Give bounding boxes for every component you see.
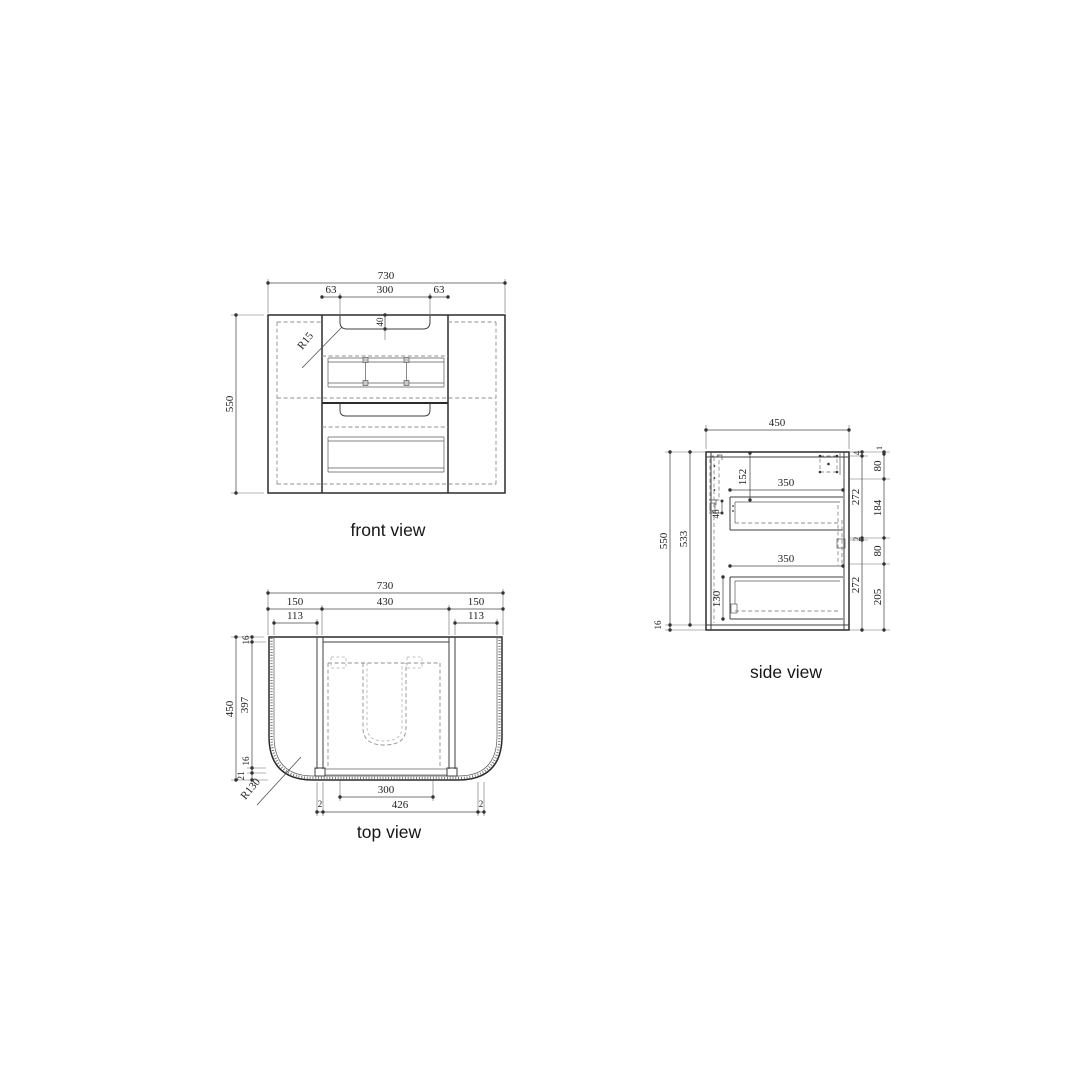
dim-top-300: 300 xyxy=(378,784,395,796)
front-view: 730 63 300 63 40 R15 550 front view xyxy=(224,270,507,540)
dim-front-r15: R15 xyxy=(295,330,316,352)
dim-side-80-bottom: 80 xyxy=(872,545,884,557)
dim-side-205: 205 xyxy=(872,588,884,605)
dim-front-40: 40 xyxy=(375,317,385,327)
dim-top-150-left: 150 xyxy=(287,596,304,608)
dim-side-272-bottom: 272 xyxy=(850,577,862,594)
front-view-label: front view xyxy=(351,520,426,540)
dim-side-152: 152 xyxy=(737,469,749,486)
dim-top-426: 426 xyxy=(392,799,409,811)
top-view-label: top view xyxy=(357,822,422,842)
dim-front-730: 730 xyxy=(378,270,395,282)
dim-top-21: 21 xyxy=(236,772,246,781)
dim-top-113-left: 113 xyxy=(287,610,304,622)
side-view-dimensions: 450 550 16 533 46 152 350 350 xyxy=(653,417,890,632)
dim-side-350-top: 350 xyxy=(778,477,795,489)
dim-front-300: 300 xyxy=(377,284,394,296)
vanity-cabinet-drawing: 730 63 300 63 40 R15 550 front view xyxy=(0,0,1080,1080)
dim-front-63-right: 63 xyxy=(434,284,446,296)
dim-side-16: 16 xyxy=(653,620,663,630)
dim-top-16-back: 16 xyxy=(241,635,251,645)
dim-top-2-left: 2 xyxy=(318,799,323,809)
dim-side-533: 533 xyxy=(678,530,690,547)
dim-top-113-right: 113 xyxy=(468,610,485,622)
top-view: 730 150 430 150 113 113 450 16 39 xyxy=(224,580,505,842)
dim-top-450: 450 xyxy=(224,700,236,717)
drawer-handle-notch xyxy=(340,403,430,416)
dim-top-430: 430 xyxy=(377,596,394,608)
dim-top-397: 397 xyxy=(239,696,251,713)
dim-top-2-right: 2 xyxy=(479,799,484,809)
dim-side-550: 550 xyxy=(658,532,670,549)
side-view: 450 550 16 533 46 152 350 350 xyxy=(653,417,890,682)
section-hatch xyxy=(272,638,500,778)
top-view-linework xyxy=(269,637,502,780)
dim-side-450: 450 xyxy=(769,417,786,429)
dim-side-2: 2 xyxy=(852,537,862,542)
dim-side-272-top: 272 xyxy=(850,489,862,506)
dim-side-46: 46 xyxy=(711,509,721,519)
technical-drawing-page: 730 63 300 63 40 R15 550 front view xyxy=(0,0,1080,1080)
plumbing-recess xyxy=(363,663,406,745)
dim-side-80-top: 80 xyxy=(872,460,884,472)
dim-front-550: 550 xyxy=(224,395,236,412)
dim-side-184: 184 xyxy=(872,499,884,516)
dim-side-350-bottom: 350 xyxy=(778,553,795,565)
dim-side-1: 1 xyxy=(875,446,884,450)
dim-top-150-right: 150 xyxy=(468,596,485,608)
dim-top-730: 730 xyxy=(377,580,394,592)
dim-front-63-left: 63 xyxy=(326,284,338,296)
dim-side-130: 130 xyxy=(711,590,723,607)
front-rail xyxy=(325,769,447,775)
dim-top-16-front: 16 xyxy=(241,756,251,766)
side-view-label: side view xyxy=(750,662,822,682)
dim-side-4: 4 xyxy=(852,450,862,455)
